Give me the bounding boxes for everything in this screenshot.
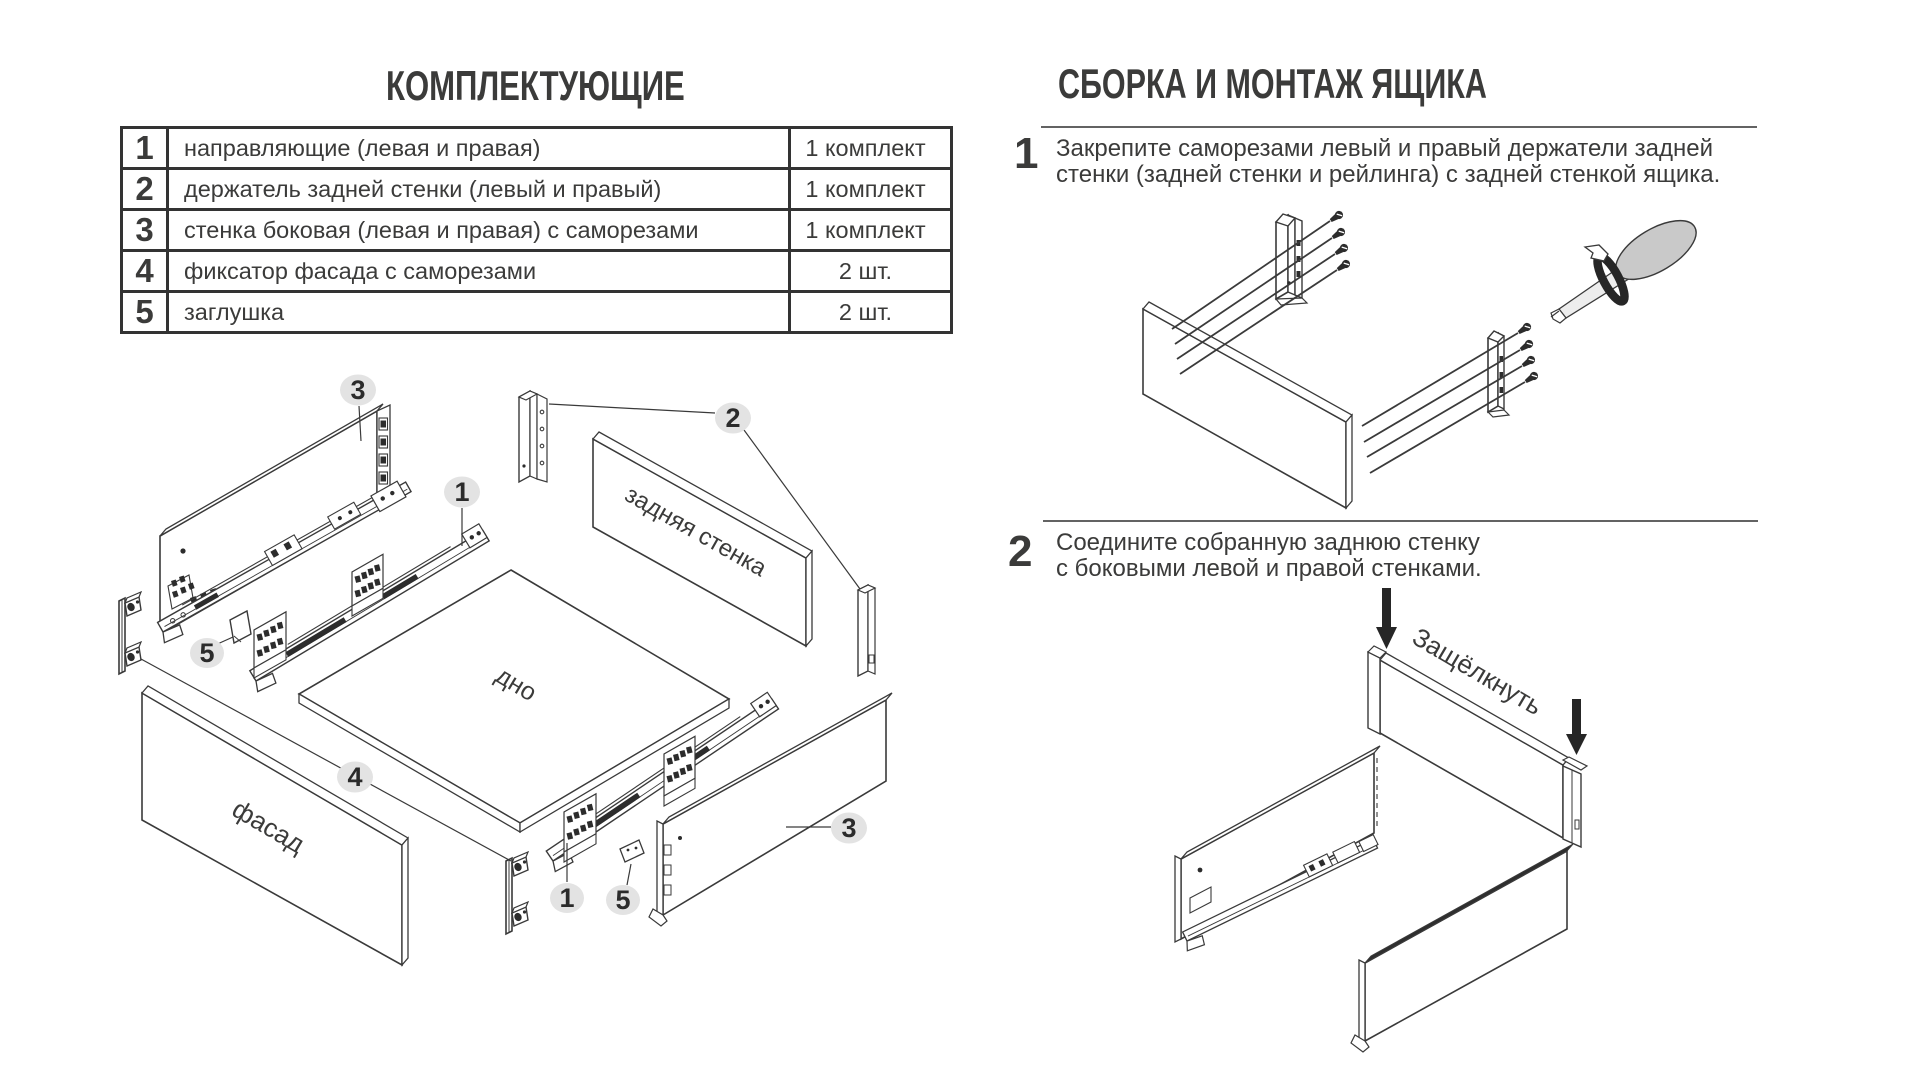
svg-text:4: 4 bbox=[347, 762, 362, 792]
svg-text:5: 5 bbox=[615, 885, 630, 915]
svg-text:1: 1 bbox=[454, 477, 469, 507]
svg-text:3: 3 bbox=[841, 813, 856, 843]
svg-text:3: 3 bbox=[350, 375, 365, 405]
svg-text:5: 5 bbox=[199, 638, 214, 668]
svg-text:1: 1 bbox=[559, 883, 574, 913]
svg-text:2: 2 bbox=[725, 403, 740, 433]
